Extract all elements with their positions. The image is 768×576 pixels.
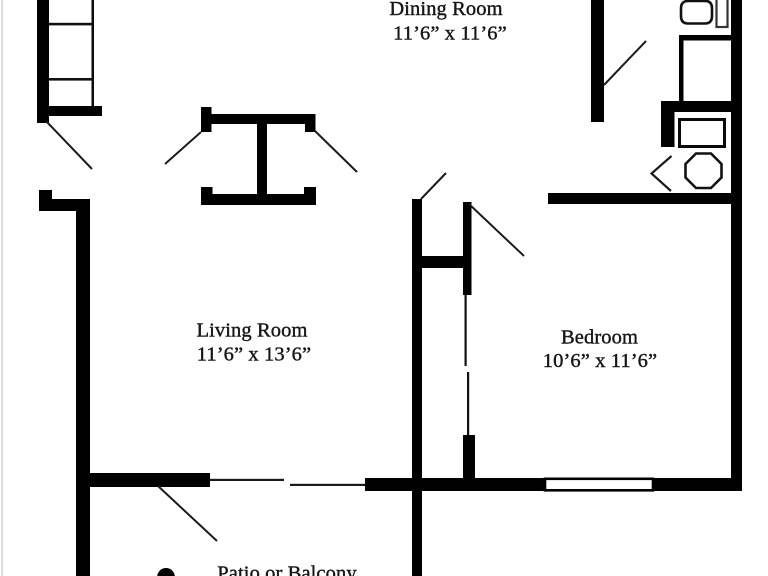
svg-text:Dining Room: Dining Room (389, 0, 502, 20)
svg-text:11’6” x 11’6”: 11’6” x 11’6” (393, 23, 507, 45)
svg-text:10’6” x 11’6”: 10’6” x 11’6” (543, 350, 657, 372)
svg-text:Living Room: Living Room (196, 320, 307, 342)
svg-text:Bedroom: Bedroom (561, 327, 638, 349)
svg-text:Patio or Balcony: Patio or Balcony (217, 563, 357, 576)
svg-text:11’6” x 13’6”: 11’6” x 13’6” (197, 344, 311, 366)
